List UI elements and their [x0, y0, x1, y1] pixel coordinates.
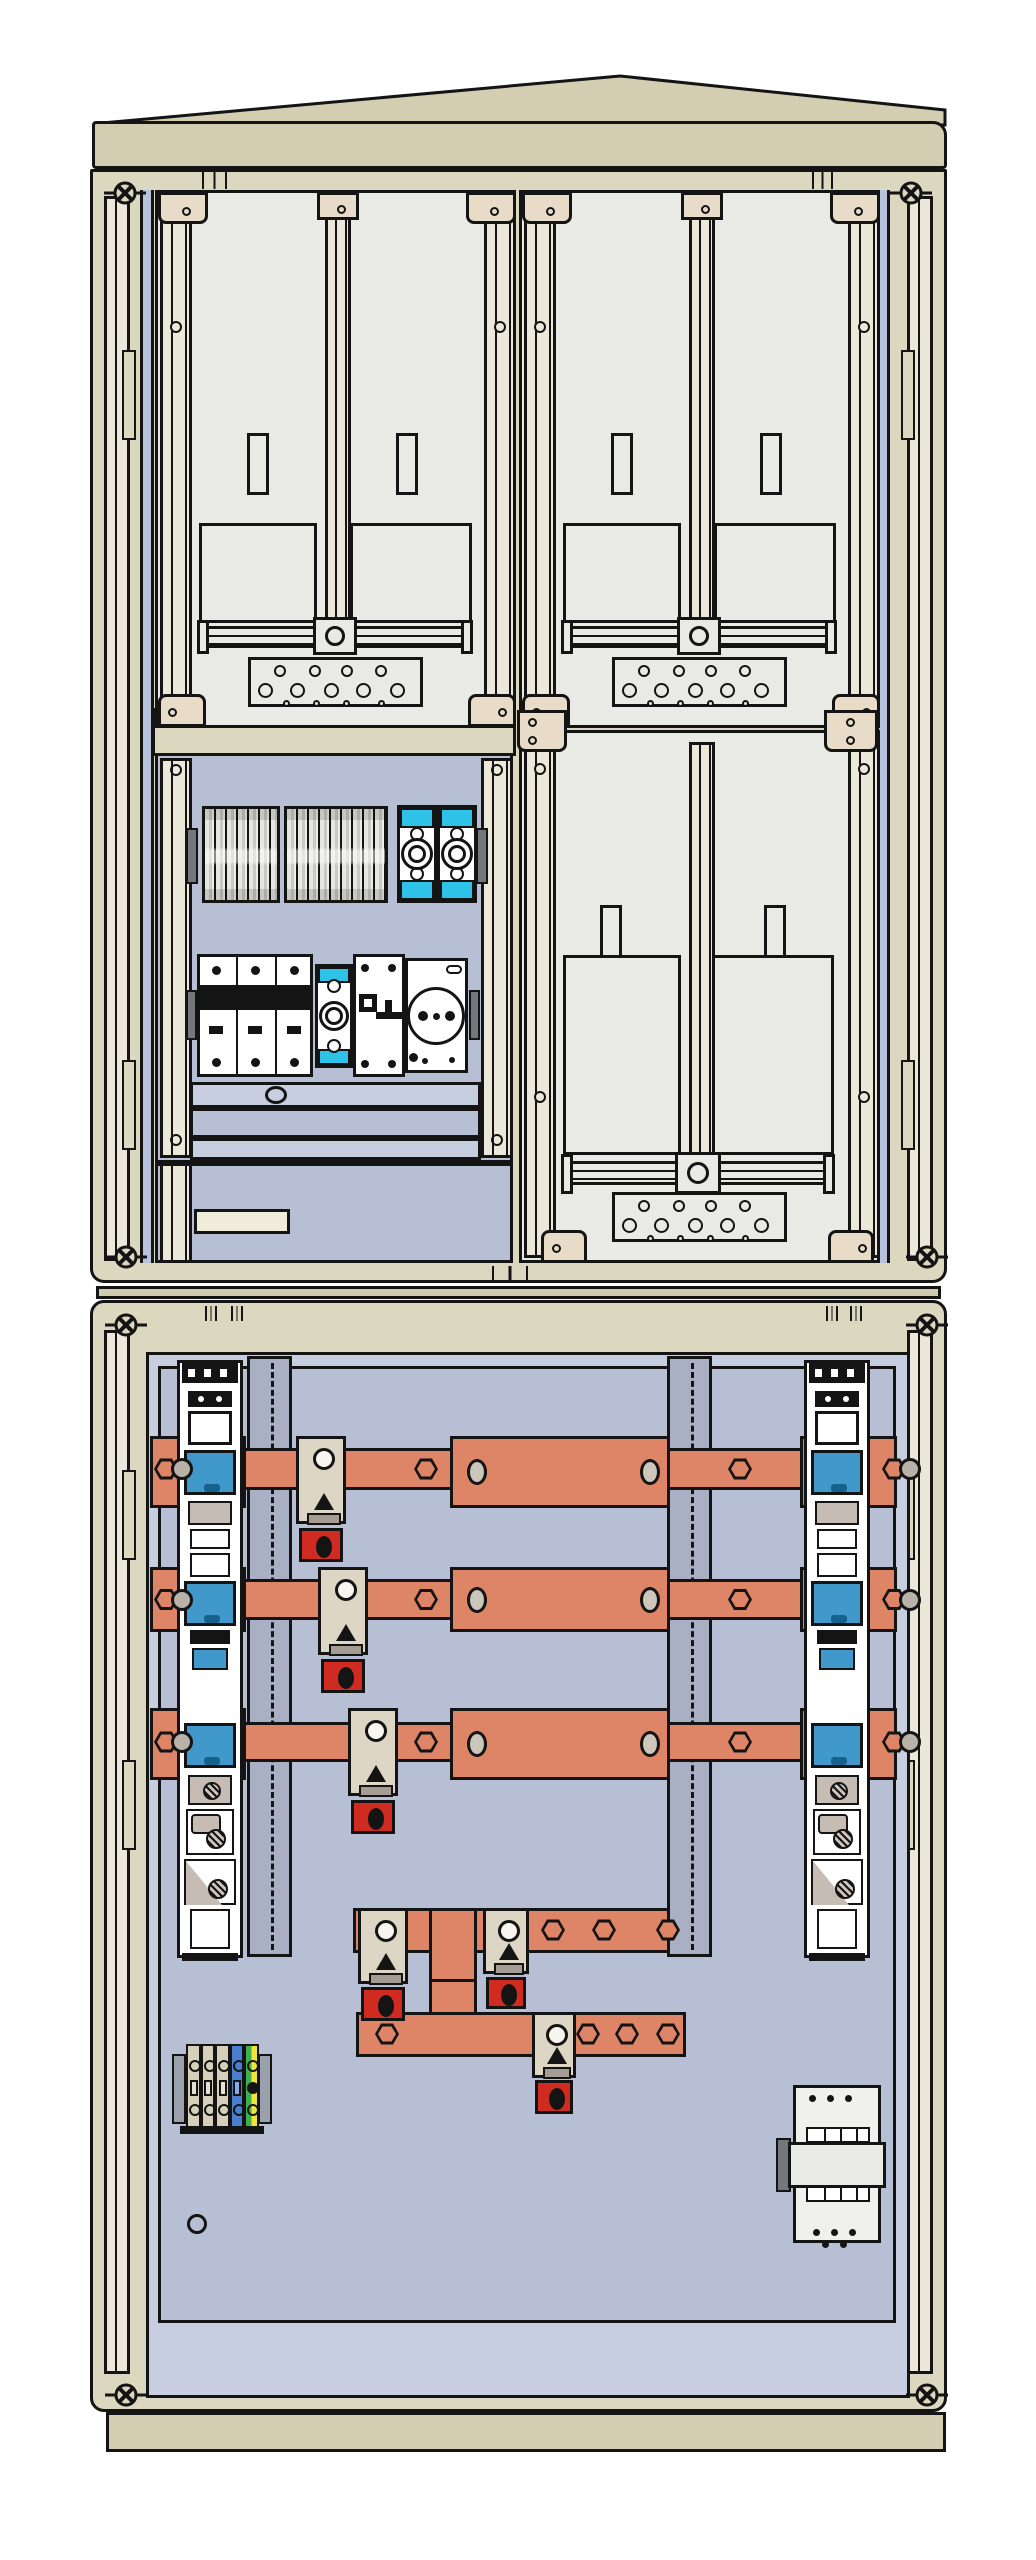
meter-fixing-slot: [396, 433, 418, 495]
rail-screw-hole: [858, 321, 870, 333]
fuse-grip: [204, 1757, 220, 1765]
roof-top-surface: [0, 0, 1036, 140]
socket-detail: [446, 965, 462, 974]
cyan-band: [440, 808, 474, 828]
corner-screw: [906, 1311, 948, 1339]
terminal-screw: [233, 2104, 245, 2116]
bottom-strip-rail: [160, 1163, 192, 1263]
terminal-side-plate: [172, 2054, 186, 2124]
cable-lug-zone: [186, 1809, 234, 1855]
corner-screw: [906, 2381, 948, 2409]
junction-strip: [96, 1286, 941, 1299]
fuse-grip: [831, 1615, 847, 1623]
plate-hole: [677, 700, 684, 707]
fuse-cap-inner: [325, 1007, 343, 1025]
sleeve-core: [316, 1536, 332, 1558]
distribution-field-rail-left: [160, 758, 192, 1158]
module-contact: [327, 979, 341, 993]
right-wall-tab: [901, 1060, 915, 1150]
bracket-screw-hole: [168, 708, 177, 717]
plate-hole: [677, 1235, 684, 1242]
fuse-window: [188, 1411, 232, 1445]
nh-fuse-strip-right: [804, 1360, 870, 1958]
fuse-grip: [204, 1615, 220, 1623]
terminal-blue: [230, 2044, 245, 2128]
left-wall-tab: [122, 1760, 136, 1850]
meter-window: [350, 523, 472, 623]
cable-clamp-zone: [188, 1775, 232, 1805]
mounting-bracket: [541, 1230, 587, 1263]
terminal-divider: [824, 2188, 826, 2200]
cable-wedge-zone: [811, 1859, 863, 1905]
perforated-plate: [248, 657, 423, 707]
clamp-triangle: [376, 1953, 396, 1970]
device-dot: [809, 2095, 816, 2102]
clamp-contact: [375, 1920, 397, 1942]
rcd-dot: [388, 1060, 396, 1068]
busbar-oval-hole: [640, 1587, 660, 1613]
perforated-plate: [612, 657, 787, 707]
clamp-screw: [208, 1879, 228, 1899]
rail-screw-hole: [491, 1134, 503, 1146]
bracket-screw-hole: [337, 205, 346, 214]
clamp-triangle: [366, 1765, 386, 1782]
busbar-bolt-face: [417, 1734, 435, 1749]
bracket-screw-hole: [854, 207, 863, 216]
breaker-dot: [251, 966, 260, 975]
terminal-screw: [218, 2060, 230, 2072]
strip-window-bottom: [817, 1909, 857, 1949]
device-dot: [840, 2241, 847, 2248]
cyan-band: [400, 880, 434, 900]
bracket-screw-hole: [528, 736, 537, 745]
rail-screw-hole: [534, 763, 546, 775]
busbar-bolt-face: [731, 1734, 749, 1749]
meter-field-top-right-rail: [524, 195, 556, 723]
terminal-divider: [856, 2188, 858, 2200]
left-wall-tab: [122, 350, 136, 440]
terminal-group: [202, 806, 280, 903]
busbar-bolt-face: [417, 1461, 435, 1476]
band-dot: [198, 1396, 204, 1402]
distribution-field-rail-right: [481, 758, 513, 1158]
device-dot: [822, 2241, 829, 2248]
plate-hole: [673, 665, 685, 677]
cap-tick: [847, 1369, 854, 1377]
terminal-beige: [186, 2044, 201, 2128]
busbar-bolt-face: [659, 1922, 677, 1937]
busbar-oval-hole: [640, 1731, 660, 1757]
terminal-screw: [189, 2060, 201, 2072]
clamp-triangle: [314, 1493, 334, 1510]
plate-hole: [705, 665, 717, 677]
rail-screw-hole: [534, 321, 546, 333]
perforated-plate: [612, 1192, 787, 1242]
cable-sleeve-red: [486, 1977, 526, 2009]
rail-screw-hole: [534, 1091, 546, 1103]
clamp-waist: [359, 1785, 393, 1797]
plate-hole: [647, 1235, 654, 1242]
device-dot: [831, 2229, 838, 2236]
din-rail-end-cap: [476, 828, 488, 884]
cabinet-diagram: [0, 0, 1036, 2560]
socket-detail-dot: [422, 1058, 428, 1064]
clamp-waist: [369, 1973, 403, 1985]
plate-hole: [343, 700, 350, 707]
contact-band: [188, 1391, 232, 1407]
plate-hole: [274, 665, 286, 677]
device-dot: [813, 2229, 820, 2236]
hinge-tab: [231, 1306, 243, 1321]
mounting-bracket: [828, 1230, 874, 1263]
busbar-bolt-face: [417, 1592, 435, 1607]
breaker-black-band: [197, 985, 313, 1010]
meter-window: [199, 523, 317, 623]
sleeve-core: [501, 1984, 517, 2006]
din-rail-end-cap: [186, 990, 197, 1040]
branch-clamp: [483, 1908, 529, 1974]
plate-hole: [754, 683, 769, 698]
busbar-oval-hole: [467, 1587, 487, 1613]
terminal-divider: [840, 2188, 842, 2200]
mounting-bracket: [522, 192, 572, 224]
cap-tick: [220, 1369, 227, 1377]
left-wall-tab: [122, 1060, 136, 1150]
mounting-bracket: [317, 192, 359, 220]
hinge-tab: [812, 171, 833, 189]
device-dot: [849, 2229, 856, 2236]
socket-pin: [445, 1011, 455, 1021]
fuse-grip: [831, 1484, 847, 1492]
rail-screw-hole: [494, 321, 506, 333]
mounting-bracket: [517, 710, 567, 752]
hinge-tab: [826, 1306, 838, 1321]
clamp-contact: [498, 1920, 520, 1942]
strip-bottom-cap: [809, 1953, 865, 1961]
plate-hole: [290, 683, 305, 698]
clamp-waist: [494, 1963, 524, 1975]
contact-band: [815, 1391, 859, 1407]
mounting-bracket: [824, 710, 878, 752]
clamp-contact: [313, 1448, 335, 1470]
clamp-screw: [830, 1782, 848, 1800]
branch-clamp: [358, 1908, 408, 1984]
meter-fixing-slot: [760, 433, 782, 495]
rail-screw-hole: [858, 763, 870, 775]
terminal-screw: [247, 2060, 259, 2072]
pad-nut: [171, 1458, 193, 1480]
busbar-bolt-face: [731, 1461, 749, 1476]
clamp-contact: [365, 1720, 387, 1742]
bracket-screw-hole: [528, 718, 537, 727]
contact-band: [817, 1630, 857, 1644]
meter-field-top-left-rail: [160, 195, 192, 723]
duct-oval: [265, 1086, 287, 1104]
strip-window-small: [190, 1529, 230, 1549]
busbar-oval-hole: [640, 1459, 660, 1485]
sleeve-core: [378, 1995, 394, 2017]
fuse-link-window: [811, 1450, 863, 1495]
meter-field-top-left-rail: [484, 195, 516, 723]
breaker-dot: [212, 1058, 221, 1067]
mounting-bracket: [466, 192, 516, 224]
rcd-test-button: [359, 994, 377, 1012]
cyan-band: [400, 808, 434, 828]
clamp-waist: [307, 1513, 341, 1525]
plate-hole: [283, 700, 290, 707]
cap-tick: [204, 1369, 211, 1377]
mounting-bracket: [830, 192, 880, 224]
bracket-screw-hole: [846, 736, 855, 745]
hinge-tab: [205, 1306, 217, 1321]
rail-screw-hole: [858, 1091, 870, 1103]
plate-hole: [720, 683, 735, 698]
meter-field-bottom-right-rail: [524, 735, 556, 1258]
busbar-oval-hole: [467, 1459, 487, 1485]
mounting-bracket: [158, 694, 206, 727]
terminal-mid: [190, 2080, 198, 2096]
device-terminal-row: [806, 2127, 870, 2143]
terminal-screw: [218, 2104, 230, 2116]
cable-sleeve-red: [361, 1987, 405, 2021]
plate-hole: [707, 1235, 714, 1242]
rail-screw-hole: [170, 321, 182, 333]
plate-hole: [673, 1200, 685, 1212]
terminal-green-yellow: [244, 2044, 259, 2128]
busbar-bolt-face: [618, 2026, 636, 2041]
clamp-screw: [835, 1879, 855, 1899]
cable-sleeve-red: [299, 1528, 343, 1562]
busbar-bolt-face: [579, 2026, 597, 2041]
meter-window: [714, 523, 836, 623]
clamp-triangle: [499, 1943, 519, 1960]
plate-hole: [313, 700, 320, 707]
terminal-mid: [219, 2080, 227, 2096]
rcd-dot: [388, 964, 396, 972]
roof-fascia: [92, 121, 947, 169]
corner-screw: [104, 179, 146, 207]
terminal-center-dot: [247, 2082, 259, 2094]
strip-window-small: [817, 1553, 857, 1577]
hinge-tab: [202, 171, 227, 189]
fuse-cap-inner: [408, 845, 426, 863]
bracket-screw-hole: [490, 207, 499, 216]
terminal-divider: [824, 2129, 826, 2141]
busbar-bolt-face: [595, 1922, 613, 1937]
left-wall-tab: [122, 1470, 136, 1560]
device-terminal-row: [806, 2186, 870, 2202]
clamp-contact: [546, 2024, 568, 2046]
terminal-screw: [189, 2104, 201, 2116]
fuse-link-small: [819, 1648, 855, 1670]
meter-field-top-right-rail: [848, 195, 880, 723]
plate-hole: [739, 665, 751, 677]
plate-hole: [739, 1200, 751, 1212]
corner-screw: [105, 1311, 147, 1339]
bracket-screw-hole: [701, 205, 710, 214]
bracket-screw-hole: [846, 718, 855, 727]
bracket-screw-hole: [182, 207, 191, 216]
terminal-mid: [233, 2080, 241, 2096]
fuse-link-window: [811, 1723, 863, 1768]
bracket-screw-hole: [552, 1244, 561, 1253]
cap-tick: [815, 1369, 822, 1377]
cable-duct: [190, 1138, 481, 1160]
strip-clip: [188, 1501, 232, 1525]
plate-hole: [654, 1218, 669, 1233]
terminal-divider: [856, 2129, 858, 2141]
rcd-dot: [361, 1060, 369, 1068]
pad-nut: [899, 1589, 921, 1611]
cable-sleeve-red: [535, 2080, 573, 2114]
breaker-dot: [212, 966, 221, 975]
adjustment-rail-cap: [197, 620, 209, 654]
meter-window: [563, 955, 681, 1155]
sleeve-core: [549, 2088, 565, 2110]
strip-window-small: [817, 1529, 857, 1549]
corner-screw: [906, 1243, 948, 1271]
plate-hole: [638, 1200, 650, 1212]
cable-sleeve-red: [321, 1659, 365, 1693]
pad-nut: [899, 1458, 921, 1480]
terminal-screw: [204, 2060, 216, 2072]
adjustment-rail-cap: [561, 620, 573, 654]
cable-support-rail: [247, 1356, 292, 1957]
plate-hole: [356, 683, 371, 698]
fuse-cap-inner: [448, 845, 466, 863]
breaker-module-divider: [275, 954, 277, 1077]
terminal-group: [284, 806, 388, 903]
plate-hole: [705, 1200, 717, 1212]
module-contact: [327, 1039, 341, 1053]
branch-clamp: [348, 1708, 398, 1796]
plate-hole: [754, 1218, 769, 1233]
corner-screw: [890, 179, 932, 207]
plate-hole: [647, 700, 654, 707]
branch-clamp: [296, 1436, 346, 1524]
adjustment-knob: [689, 626, 709, 646]
meter-field-bottom-right-rail: [848, 735, 880, 1258]
plate-hole: [622, 1218, 637, 1233]
terminal-divider: [840, 2129, 842, 2141]
corner-screw: [105, 2381, 147, 2409]
clamp-screw: [206, 1829, 226, 1849]
adjustment-knob: [325, 626, 345, 646]
fuse-link-window: [811, 1581, 863, 1626]
clamp-screw: [203, 1782, 221, 1800]
busbar-oval-hole: [467, 1731, 487, 1757]
terminal-beige: [215, 2044, 230, 2128]
busbar-bolt-face: [659, 2026, 677, 2041]
contact-band: [190, 1630, 230, 1644]
fuse-window: [815, 1411, 859, 1445]
branch-clamp: [318, 1567, 368, 1655]
plate-hole: [390, 683, 405, 698]
bracket-screw-hole: [498, 708, 507, 717]
pen-busbar-joint-line: [432, 1979, 474, 1982]
bracket-screw-hole: [546, 207, 555, 216]
busbar-bolt-face: [731, 1592, 749, 1607]
rail-screw-hole: [491, 764, 503, 776]
rail-screw-hole: [170, 1134, 182, 1146]
rcd-lever: [376, 1012, 403, 1019]
sleeve-core: [338, 1667, 354, 1689]
breaker-dot: [290, 1058, 299, 1067]
fuse-grip: [204, 1484, 220, 1492]
plate-hole: [688, 1218, 703, 1233]
mounting-bracket: [468, 694, 516, 727]
device-dot: [845, 2095, 852, 2102]
main-switch-mid-band: [788, 2142, 886, 2188]
sleeve-core: [368, 1808, 384, 1830]
adjustment-knob: [687, 1162, 709, 1184]
pad-nut: [171, 1731, 193, 1753]
socket-pin: [433, 1013, 440, 1020]
plate-hole: [309, 665, 321, 677]
plate-hole: [622, 683, 637, 698]
pad-nut: [171, 1589, 193, 1611]
breaker-toggle: [287, 1026, 301, 1034]
mounting-bracket: [158, 192, 208, 224]
cap-tick: [831, 1369, 838, 1377]
clamp-triangle: [547, 2047, 567, 2064]
meter-fixing-slot: [611, 433, 633, 495]
fuse-link-small: [192, 1648, 228, 1670]
band-dot: [216, 1396, 222, 1402]
adjustment-rail-cap: [823, 1154, 835, 1194]
plate-hole: [375, 665, 387, 677]
adjustment-rail-cap: [561, 1154, 573, 1194]
cable-duct: [190, 1082, 481, 1108]
clamp-waist: [543, 2067, 571, 2079]
plinth: [106, 2412, 946, 2452]
band-dot: [843, 1396, 849, 1402]
right-wall-tab: [901, 350, 915, 440]
breaker-toggle: [248, 1026, 262, 1034]
terminal-screw: [247, 2104, 259, 2116]
label-plate: [194, 1209, 290, 1234]
plate-hole: [324, 683, 339, 698]
cable-sleeve-red: [351, 1800, 395, 1834]
band-dot: [825, 1396, 831, 1402]
meter-fixing-slot: [247, 433, 269, 495]
terminal-side-plate: [258, 2054, 272, 2124]
strip-window-bottom: [190, 1909, 230, 1949]
drain-hole: [187, 2214, 207, 2234]
bracket-screw-hole: [858, 1244, 867, 1253]
breaker-dot: [290, 966, 299, 975]
plate-hole: [742, 1235, 749, 1242]
cable-wedge-zone: [184, 1859, 236, 1905]
breaker-toggle: [209, 1026, 223, 1034]
cable-support-rail: [667, 1356, 712, 1957]
clamp-waist: [329, 1644, 363, 1656]
plate-hole: [378, 700, 385, 707]
strip-clip: [815, 1501, 859, 1525]
plate-hole: [654, 683, 669, 698]
clamp-contact: [335, 1579, 357, 1601]
mounting-bracket: [681, 192, 723, 220]
socket-pin: [418, 1011, 428, 1021]
adjustment-rail-cap: [825, 620, 837, 654]
meter-window: [563, 523, 681, 623]
cable-duct: [190, 1108, 481, 1138]
nh-fuse-strip-left: [177, 1360, 243, 1958]
clamp-screw: [833, 1829, 853, 1849]
cable-lug-zone: [813, 1809, 861, 1855]
din-rail-end-cap: [186, 828, 198, 884]
meter-field-top-left-center-rail: [325, 200, 351, 624]
